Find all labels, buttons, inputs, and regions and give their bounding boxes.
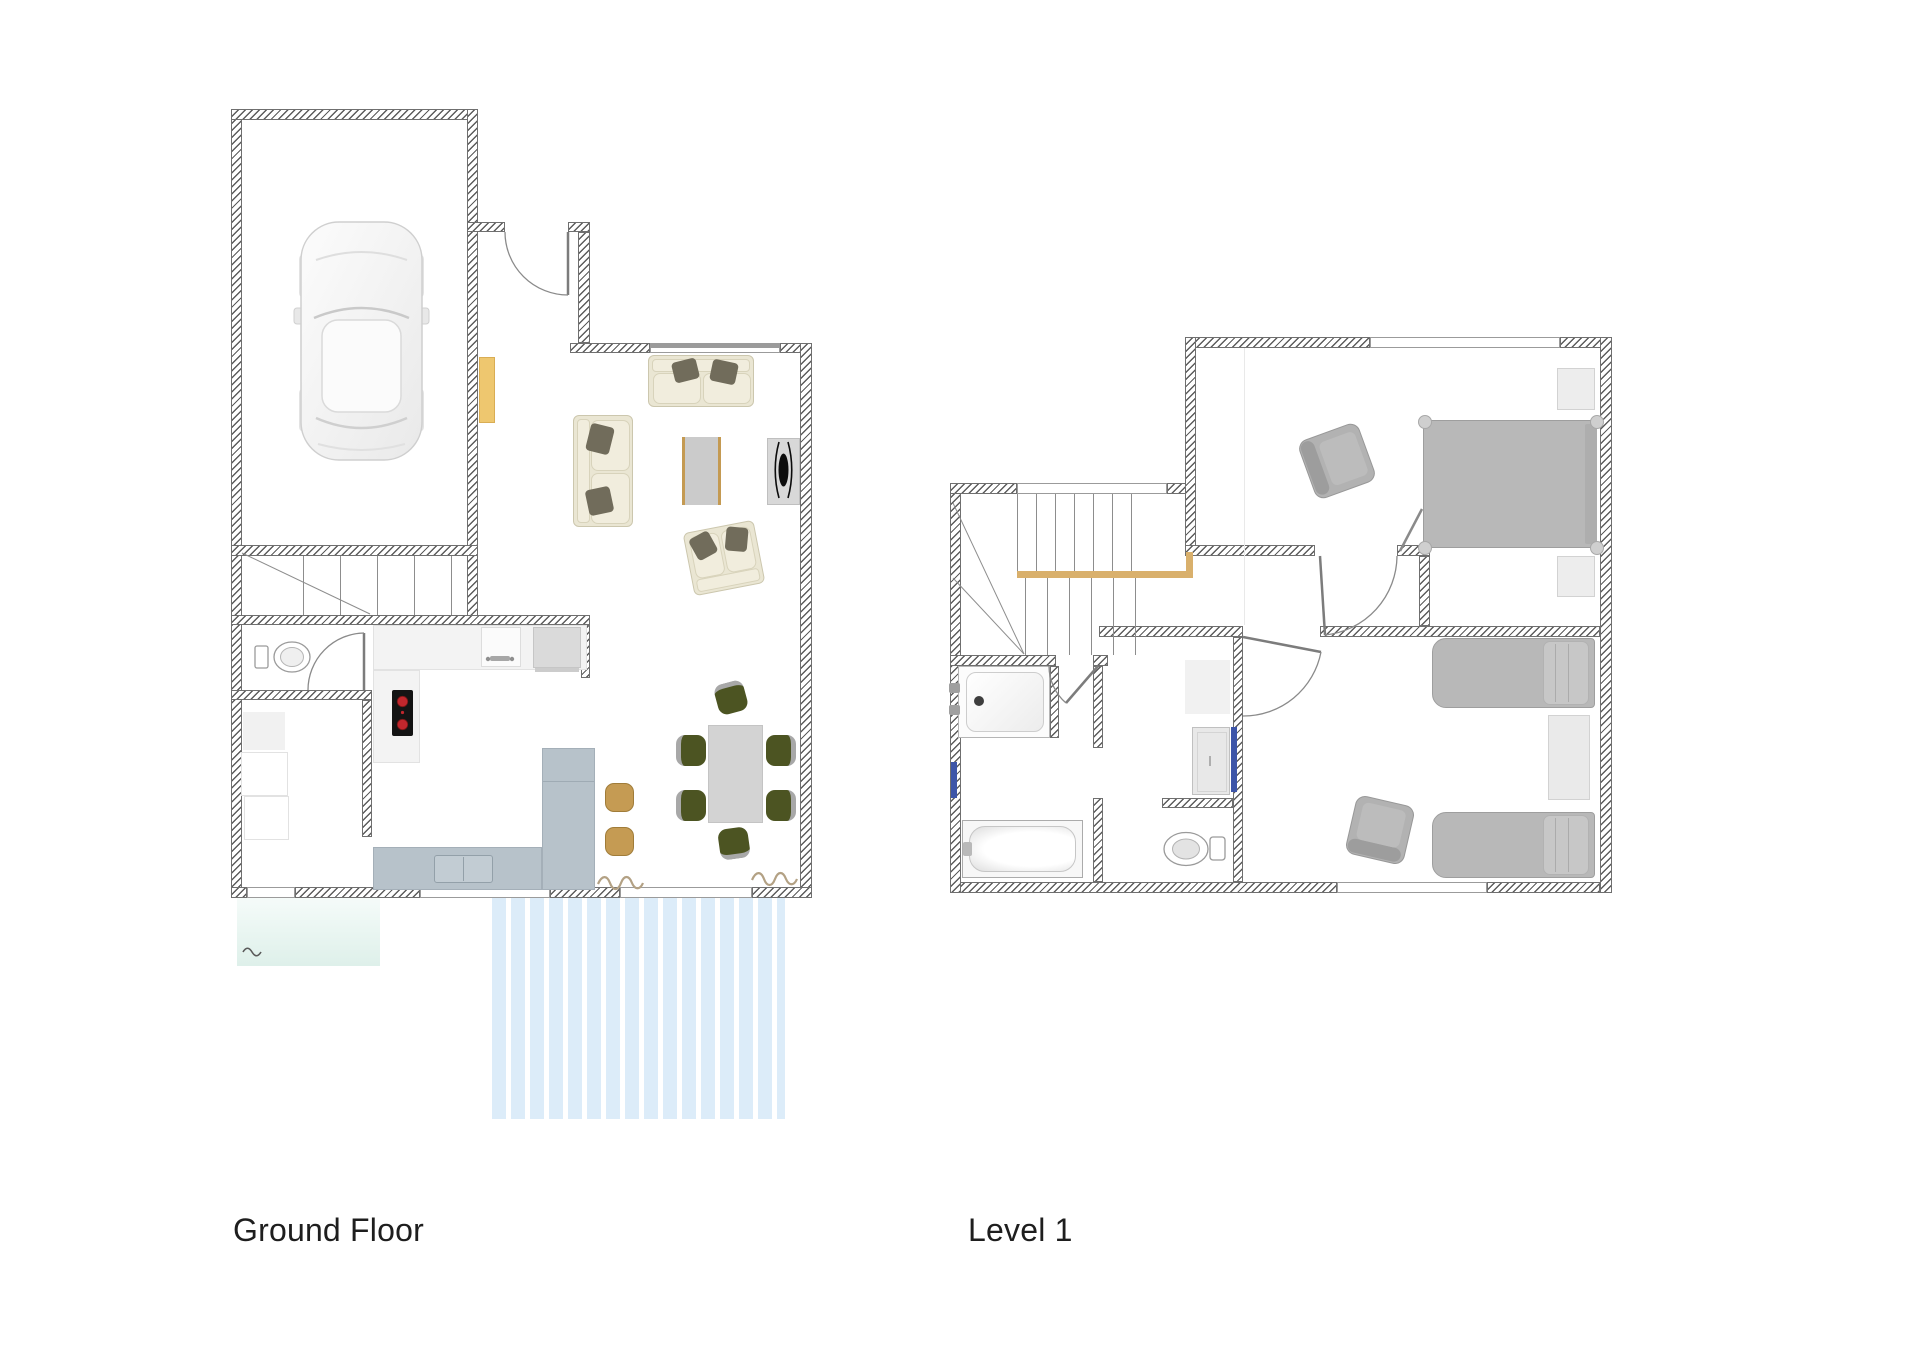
- dining-chair: [712, 679, 749, 717]
- wall: [1487, 882, 1600, 893]
- wall: [1419, 556, 1430, 626]
- tv-unit: [767, 438, 800, 505]
- pillow-crease: [1568, 644, 1569, 702]
- stair-tread: [1113, 578, 1114, 655]
- wall: [1185, 337, 1370, 348]
- bath-faucet: [963, 842, 972, 856]
- nightstand: [1557, 556, 1595, 597]
- wall: [1320, 626, 1600, 637]
- stair-tread: [1069, 578, 1070, 655]
- wall: [1185, 545, 1315, 556]
- shower-knob: [949, 705, 960, 715]
- shower-knob: [949, 683, 960, 693]
- stair-tread: [1093, 494, 1094, 571]
- pillow-crease: [1555, 644, 1556, 702]
- level-1-label: Level 1: [968, 1212, 1073, 1249]
- nightstand: [1557, 368, 1595, 410]
- pillow-crease: [1568, 818, 1569, 872]
- bed-post: [1418, 415, 1432, 429]
- bed-pillow: [1543, 815, 1589, 875]
- stair-tread: [1131, 494, 1132, 571]
- radiator-strip: [951, 762, 957, 798]
- stair-railing: [1186, 552, 1193, 578]
- double-bed: [1423, 420, 1597, 548]
- window: [1337, 882, 1487, 893]
- stair-tread: [1091, 578, 1092, 655]
- wall: [1093, 655, 1108, 666]
- stair-tread: [1036, 494, 1037, 571]
- wall: [800, 343, 812, 893]
- bed-headboard: [1585, 424, 1597, 544]
- level-1-plan: [0, 0, 700, 1358]
- wall: [950, 655, 1056, 666]
- stair-tread: [1055, 494, 1056, 571]
- bedroom2-door: [1243, 637, 1321, 716]
- window: [1017, 483, 1167, 494]
- wall: [950, 483, 1017, 494]
- wall: [1162, 798, 1233, 808]
- stair-tread: [1025, 578, 1026, 655]
- stair-tread: [1112, 494, 1113, 571]
- armchair: [1296, 421, 1377, 501]
- stair-tread: [1135, 578, 1136, 655]
- pillow-crease: [1555, 818, 1556, 872]
- wardrobe: [1192, 727, 1230, 795]
- bathtub-basin: [969, 826, 1076, 872]
- dining-chair: [717, 826, 751, 861]
- bedroom1-door: [1320, 509, 1422, 635]
- roof-line: [1244, 348, 1245, 625]
- stair-tread: [1074, 494, 1075, 571]
- bed-post: [1590, 541, 1604, 555]
- wardrobe-door: [1197, 732, 1227, 792]
- stair-tread: [1017, 494, 1018, 571]
- toilet: [1164, 833, 1225, 866]
- shower-tray: [966, 672, 1044, 732]
- stair-railing: [1017, 571, 1193, 578]
- dining-chair: [766, 790, 796, 821]
- hall-cupboard: [1185, 660, 1230, 714]
- window: [1370, 337, 1560, 348]
- pillow: [725, 526, 749, 552]
- bed-post: [1418, 541, 1432, 555]
- dining-chair: [766, 735, 796, 766]
- wall: [752, 887, 812, 898]
- ground-floor-label: Ground Floor: [233, 1212, 424, 1249]
- dining-table: [708, 725, 763, 823]
- armchair: [1344, 794, 1416, 866]
- bed-post: [1590, 415, 1604, 429]
- wall: [1050, 666, 1059, 738]
- wall: [1093, 666, 1103, 748]
- floorplan-canvas: Ground Floor Level 1: [0, 0, 1920, 1358]
- wall: [1093, 798, 1103, 882]
- stair-tread: [1047, 578, 1048, 655]
- bedside-table: [1548, 715, 1590, 800]
- wall: [950, 882, 1337, 893]
- bed-pillow: [1543, 641, 1589, 705]
- radiator-strip: [1231, 727, 1237, 792]
